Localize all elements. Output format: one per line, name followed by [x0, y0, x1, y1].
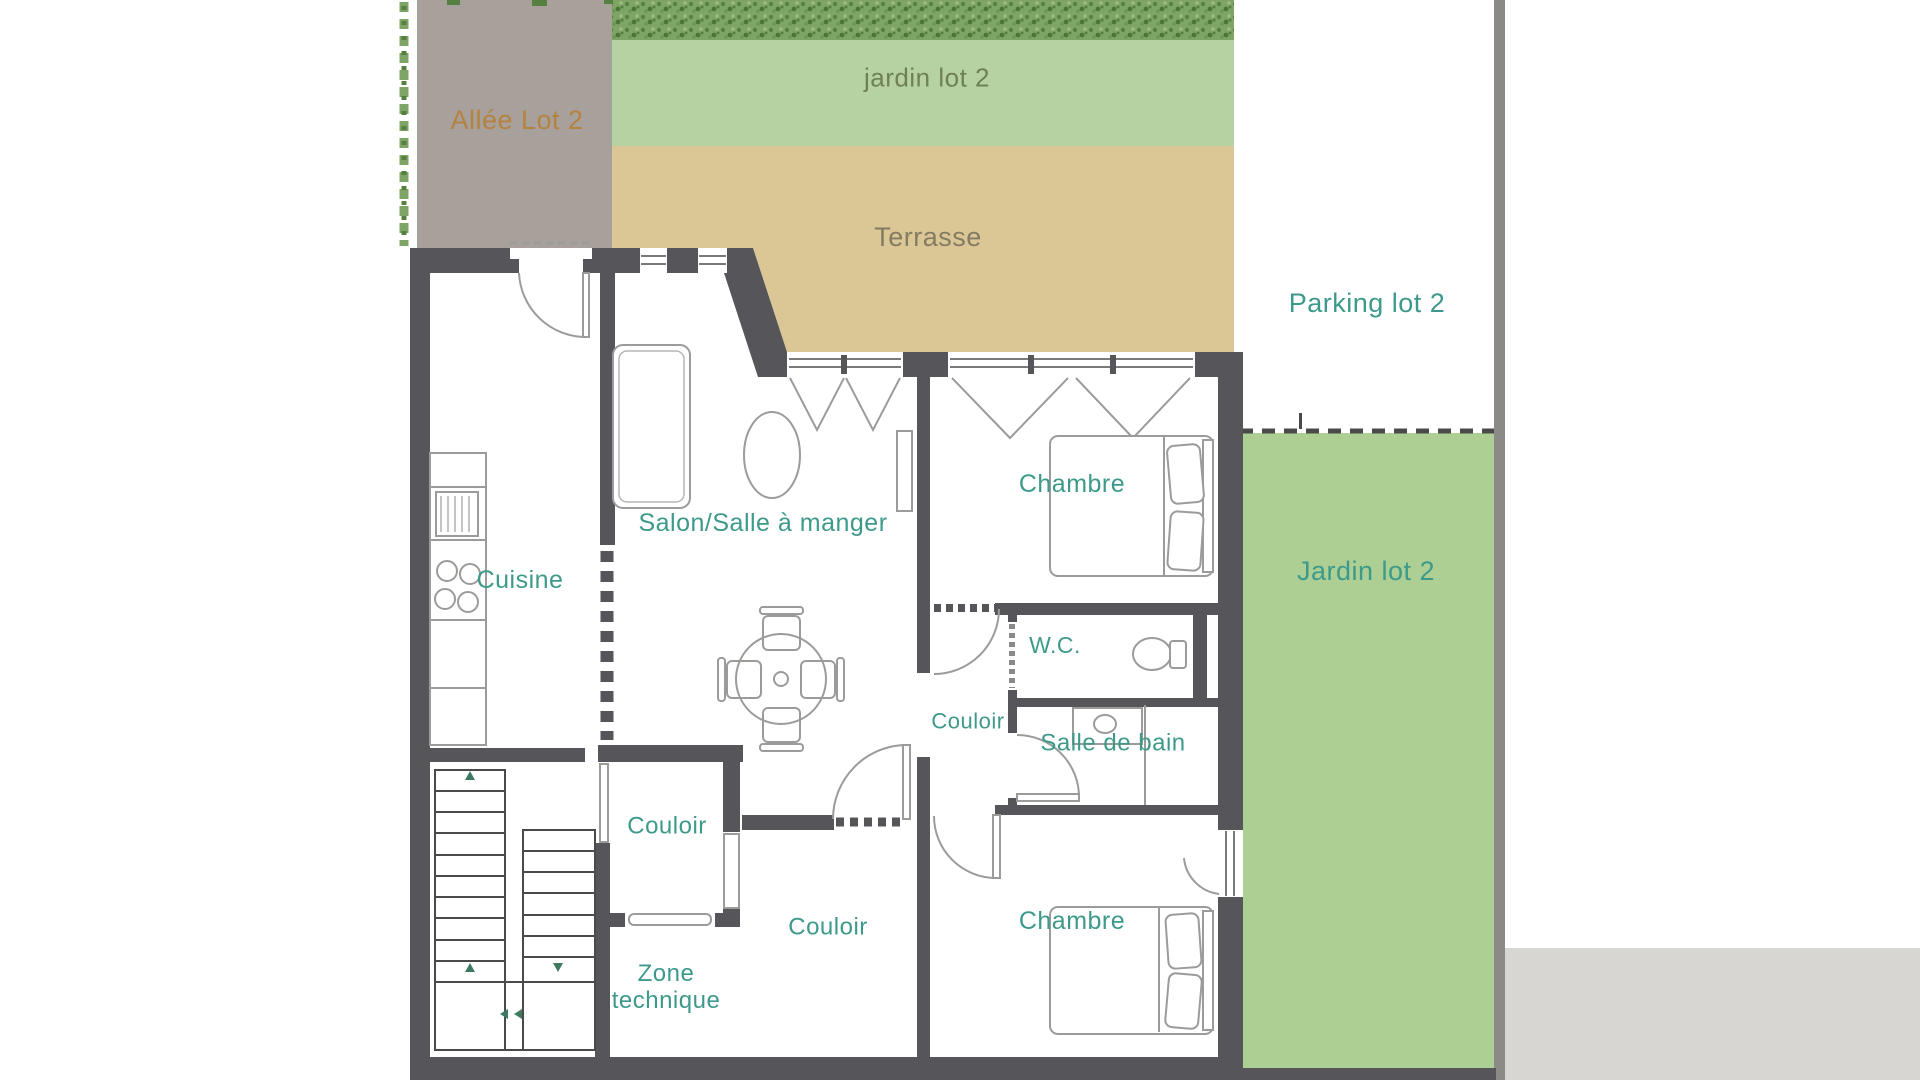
stair-treads-right	[523, 851, 595, 957]
bed1-pillow-2	[1167, 511, 1204, 571]
label-couloir-right: Couloir	[931, 710, 1004, 735]
stair-arrow-up	[465, 771, 475, 780]
radiator	[897, 431, 912, 511]
entrance-jamb-right	[583, 259, 592, 273]
wall-stairwell-right	[595, 843, 610, 1057]
entrance-door-leaf	[583, 273, 589, 337]
label-salon: Salon/Salle à manger	[638, 509, 887, 537]
bed2-headboard	[1203, 911, 1213, 1030]
wall-salon-couloirR	[917, 377, 930, 673]
wall-couloirR-wc-1	[1008, 615, 1017, 622]
wall-chambre1-bottom	[995, 603, 1243, 615]
bed1-pillow-1	[1167, 444, 1205, 505]
wall-top-3	[667, 248, 698, 273]
label-cuisine: Cuisine	[477, 566, 564, 594]
dining-table-center	[774, 672, 788, 686]
stair-landing	[435, 982, 595, 1050]
wall-stairwell-top	[413, 748, 585, 762]
wall-top-2	[592, 248, 640, 273]
door-salon-couloirB	[833, 745, 910, 822]
chair-south-back	[760, 744, 803, 751]
door-zone-technique	[629, 914, 711, 925]
dining-set	[718, 607, 844, 751]
stair-arrow-left-bottom	[465, 963, 475, 972]
wall-wc-sdb	[1008, 698, 1243, 707]
stair-arrow-landing-2	[514, 1009, 522, 1019]
staircase	[435, 770, 595, 1050]
wall-left	[410, 248, 430, 1080]
wall-couloirR-wc-3	[1008, 798, 1017, 805]
bed2-pillow-2	[1165, 973, 1203, 1030]
label-allee: Allée Lot 2	[450, 105, 583, 135]
plant-oval	[744, 412, 800, 498]
bay-window-chambre1	[948, 352, 1195, 438]
bed2-pillow-1	[1165, 913, 1202, 969]
label-couloir-lower: Couloir	[788, 915, 868, 942]
doors	[600, 608, 1079, 925]
label-couloir-upper: Couloir	[627, 814, 707, 841]
entrance-door-swing	[519, 273, 586, 337]
stair-treads-left	[435, 791, 505, 961]
label-jardin-top: jardin lot 2	[864, 63, 990, 92]
chair-west	[727, 661, 761, 698]
chair-west-back	[718, 658, 725, 701]
bed1-headboard	[1203, 440, 1213, 572]
entrance-opening	[510, 248, 592, 273]
wall-couloirA-B-upper	[723, 762, 740, 832]
sofa	[613, 345, 690, 508]
chair-north-back	[760, 607, 803, 614]
door-stairwell	[600, 764, 608, 842]
window-kitchen-2	[698, 248, 727, 273]
zone-jardin-right	[1240, 433, 1494, 1070]
hedge-top	[612, 0, 1234, 40]
wall-couloirA-bottom-l	[595, 913, 625, 927]
door-couloirA-couloirB	[724, 834, 739, 908]
chair-east-back	[837, 658, 844, 701]
hedge-remnant-1	[447, 0, 460, 5]
window-kitchen-1	[640, 248, 667, 273]
kitchen-counter	[430, 453, 486, 745]
wall-wc-pier	[1193, 615, 1207, 698]
chair-south	[763, 708, 800, 742]
hedge-remnant-3	[604, 0, 613, 4]
wall-couloirB-chambre2	[917, 757, 930, 1057]
label-salle-de-bain: Salle de bain	[1040, 731, 1185, 758]
wall-couloirA-top	[598, 745, 743, 762]
chair-east	[801, 661, 835, 698]
wall-bottom-right-strip	[1243, 1068, 1496, 1080]
toilet	[1133, 638, 1186, 670]
stair-flight-right	[523, 830, 595, 982]
wall-salon-couloirB	[742, 815, 834, 830]
wall-terrasse-right	[1195, 352, 1243, 377]
floor-plan-page: Allée Lot 2 jardin lot 2 Terrasse Parkin…	[0, 0, 1920, 1080]
wall-bottom	[410, 1057, 1243, 1080]
label-jardin-right: Jardin lot 2	[1297, 556, 1435, 586]
door-chambre1	[934, 608, 999, 674]
floor-plan-drawing	[0, 0, 1920, 1080]
stair-arrow-right-bottom	[553, 963, 563, 972]
hedge-remnant-2	[532, 0, 547, 6]
bay-window-salon	[787, 352, 903, 430]
chair-north	[763, 616, 800, 650]
label-zone-technique: Zone technique	[612, 961, 721, 1015]
entrance-jamb-left	[510, 259, 519, 273]
wall-sdb-chambre2	[995, 805, 1243, 815]
label-parking: Parking lot 2	[1289, 288, 1446, 318]
corner-gray-area	[1505, 948, 1920, 1080]
wall-couloirR-wc-2	[1008, 690, 1017, 733]
label-terrasse: Terrasse	[874, 222, 982, 252]
boundary-tick	[1299, 413, 1302, 429]
window-chambre2	[1184, 830, 1243, 897]
label-chambre2: Chambre	[1019, 907, 1125, 935]
wall-right-lower	[1218, 897, 1243, 1080]
door-chambre2	[934, 815, 1000, 878]
wall-terrasse-pier	[903, 352, 948, 377]
entrance-door	[510, 243, 592, 337]
property-line	[1494, 0, 1505, 1080]
label-chambre1: Chambre	[1019, 470, 1125, 498]
bed-chambre1	[1050, 436, 1213, 576]
label-wc: W.C.	[1029, 633, 1081, 659]
